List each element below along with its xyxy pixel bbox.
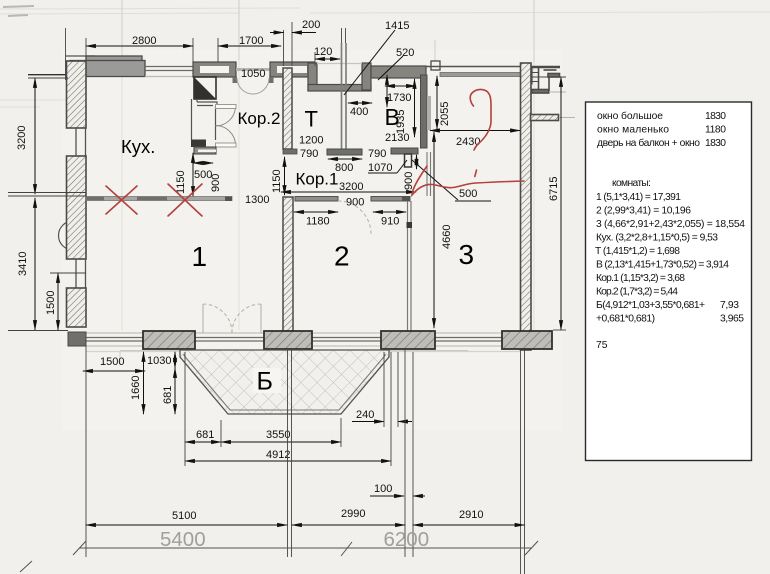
svg-text:681: 681 [162,386,174,404]
svg-text:1150: 1150 [175,170,187,194]
svg-text:окно большое: окно большое [597,110,663,122]
svg-text:Б: Б [257,368,273,396]
svg-text:100: 100 [374,483,392,495]
svg-text:3200: 3200 [16,126,28,150]
svg-text:900: 900 [210,174,222,192]
svg-text:2 (2,99*3,41) = 10,196: 2 (2,99*3,41) = 10,196 [596,206,691,217]
svg-text:1 (5,1*3,41) = 17,391: 1 (5,1*3,41) = 17,391 [596,192,681,203]
svg-text:1500: 1500 [45,291,57,315]
svg-text:1830: 1830 [705,138,726,149]
svg-text:3200: 3200 [339,181,363,193]
svg-text:500: 500 [459,188,477,200]
svg-text:1935: 1935 [395,110,407,134]
svg-text:5100: 5100 [172,510,196,522]
svg-text:4912: 4912 [266,449,290,461]
svg-text:1180: 1180 [306,216,330,228]
svg-text:75: 75 [596,340,608,351]
svg-text:Кух. (3,2*2,8+1,15*0,5) = 9,53: Кух. (3,2*2,8+1,15*0,5) = 9,53 [596,233,718,244]
svg-text:2: 2 [334,241,350,272]
svg-text:1300: 1300 [245,194,269,206]
svg-text:1200: 1200 [299,135,323,147]
svg-text:1: 1 [192,241,208,272]
svg-text:900: 900 [403,172,415,190]
svg-text:400: 400 [350,106,368,118]
svg-text:7,93: 7,93 [720,300,739,311]
svg-text:Кух.: Кух. [121,136,155,157]
svg-text:2990: 2990 [341,508,365,520]
svg-text:Т (1,415*1,2) = 1,698: Т (1,415*1,2) = 1,698 [595,246,680,257]
svg-text:800: 800 [335,162,353,174]
svg-text:120: 120 [314,46,332,58]
svg-text:3550: 3550 [266,429,290,441]
svg-text:520: 520 [396,47,414,59]
svg-text:790: 790 [368,148,386,160]
svg-text:1830: 1830 [705,111,726,122]
svg-text:240: 240 [356,409,374,421]
svg-text:1500: 1500 [100,356,124,368]
svg-text:дверь на балкон + окно: дверь на балкон + окно [597,137,700,149]
svg-text:900: 900 [346,197,364,209]
svg-text:2910: 2910 [459,509,483,521]
svg-text:1030: 1030 [147,355,171,367]
svg-text:Кор.1: Кор.1 [296,170,339,189]
svg-text:681: 681 [196,429,214,441]
svg-text:Кор.1 (1,15*3,2) = 3,68: Кор.1 (1,15*3,2) = 3,68 [596,273,685,284]
svg-text:790: 790 [300,148,318,160]
svg-text:2130: 2130 [385,132,409,144]
svg-text:окно маленько: окно маленько [597,125,669,136]
svg-text:6715: 6715 [548,177,560,201]
svg-text:2800: 2800 [132,35,156,47]
svg-text:4660: 4660 [441,225,453,249]
svg-text:3: 3 [459,239,475,270]
svg-text:910: 910 [381,216,399,228]
svg-text:1730: 1730 [387,92,411,104]
svg-text:1180: 1180 [705,125,726,136]
svg-text:Т: Т [305,107,318,132]
svg-text:1700: 1700 [239,35,263,47]
svg-text:200: 200 [302,19,320,31]
svg-text:Кор.2: Кор.2 [238,109,281,128]
svg-text:Кор.2 (1,7*3,2) = 5,44: Кор.2 (1,7*3,2) = 5,44 [596,287,678,298]
svg-text:1660: 1660 [130,376,142,400]
svg-text:+0,681*0,681): +0,681*0,681) [596,314,655,325]
svg-text:1070: 1070 [368,162,392,174]
svg-text:1050: 1050 [241,68,265,80]
svg-text:1150: 1150 [271,169,283,193]
svg-text:комнаты:: комнаты: [612,178,651,189]
svg-text:3410: 3410 [17,252,29,276]
svg-text:Б(4,912*1,03+3,55*0,681+: Б(4,912*1,03+3,55*0,681+ [596,300,705,311]
svg-text:3 (4,66*2,91+2,43*2,055) = 18,: 3 (4,66*2,91+2,43*2,055) = 18,554 [596,219,745,230]
svg-text:2055: 2055 [439,102,451,126]
svg-text:3,965: 3,965 [720,314,744,325]
svg-text:В (2,13*1,415+1,73*0,52) = 3,9: В (2,13*1,415+1,73*0,52) = 3,914 [596,260,729,271]
svg-text:1415: 1415 [385,20,409,32]
